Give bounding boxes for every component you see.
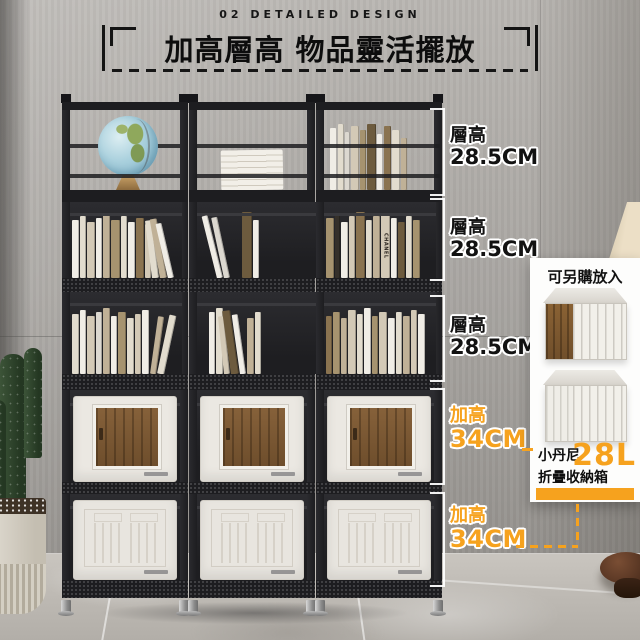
shelf-cell-r5c3	[324, 494, 434, 580]
annotation-layer-height-1: 層高 28.5CM	[450, 126, 538, 170]
folding-box-open-image	[543, 288, 627, 360]
shelf-cell-r3c1	[70, 292, 182, 374]
book-spine	[103, 308, 110, 374]
shelf-unit-1	[62, 92, 188, 614]
annotation-layer-height-3: 層高 28.5CM	[450, 316, 538, 360]
shelf-cell-r1c2	[197, 110, 307, 190]
shelf-cell-r3c3	[324, 292, 436, 374]
flat-book-stack	[221, 149, 284, 190]
connector-dash-vertical	[576, 504, 579, 546]
capacity-label: 28L	[572, 438, 636, 473]
storage-box-open	[327, 396, 431, 482]
shelf-board	[316, 278, 442, 292]
shelf: CHANEL	[62, 92, 442, 614]
book-spine: CHANEL	[381, 214, 390, 278]
globe-stand	[116, 175, 140, 190]
book-spine	[403, 316, 410, 374]
panel-title: 可另購放入	[530, 266, 640, 287]
storage-box-handle	[353, 428, 357, 440]
storage-box-closed	[327, 500, 431, 580]
book-spine	[103, 214, 110, 278]
shelf-board	[62, 482, 188, 494]
shelf-board	[316, 374, 442, 390]
book-spine	[326, 316, 332, 374]
storage-box-logo	[271, 472, 295, 476]
shelf-board	[62, 278, 188, 292]
book-spine	[341, 318, 347, 374]
book-spine	[127, 318, 134, 374]
book-spine	[388, 318, 395, 374]
annotation-layer-height-2: 層高 28.5CM	[450, 218, 538, 262]
book-spine	[366, 220, 372, 278]
product-detail-graphic: 02 DETAILED DESIGN 加高層高 物品靈活擺放 CHANEL 層高…	[0, 0, 640, 640]
shelf-board	[189, 374, 315, 390]
bracket-row5	[430, 492, 445, 587]
book-spine	[356, 212, 365, 278]
connector-dash-upper	[522, 448, 533, 451]
plant-pot	[0, 498, 46, 614]
book-spine	[392, 130, 400, 190]
shelf-bottom-rail	[62, 580, 188, 598]
wooden-stool-base	[614, 578, 640, 598]
shelf-cell-r2c1	[70, 202, 182, 278]
shelf-cell-r2c2	[197, 202, 327, 278]
book-spine	[349, 216, 355, 278]
shelf-cell-r4c2	[197, 390, 307, 482]
storage-box-open	[73, 396, 177, 482]
bracket-row4	[430, 388, 445, 485]
book-spine	[373, 216, 380, 278]
book-spine	[87, 316, 95, 374]
bracket-row3	[430, 295, 445, 382]
shelf-post	[189, 94, 197, 598]
book-spine	[348, 310, 356, 374]
book-spine	[333, 312, 340, 374]
book-spine	[379, 312, 387, 374]
shelf-post	[316, 94, 324, 598]
globe	[98, 116, 158, 176]
storage-box-opening	[347, 405, 415, 469]
storage-box-logo	[144, 570, 168, 574]
book-spine	[357, 314, 363, 374]
shelf-board	[189, 190, 315, 202]
shelf-board	[316, 190, 442, 202]
shelf-cell-r5c2	[197, 494, 307, 580]
storage-box-opening	[220, 405, 288, 469]
book-spine	[377, 134, 383, 190]
book-spine	[128, 222, 135, 278]
shelf-foot	[433, 600, 443, 614]
book-spine	[345, 132, 350, 190]
shelf-foot	[188, 600, 198, 614]
book-spine	[330, 128, 337, 190]
page-title: 加高層高 物品靈活擺放	[130, 27, 510, 69]
storage-box-logo	[398, 472, 422, 476]
shelf-bottom-rail	[316, 580, 442, 598]
book-spine	[398, 222, 405, 278]
book-spine	[111, 220, 120, 278]
panel-accent-bar	[536, 488, 634, 500]
book-spine	[111, 316, 117, 374]
book-spine	[118, 312, 126, 374]
book-spine	[384, 126, 391, 190]
book-spine	[72, 220, 79, 278]
storage-box-logo	[398, 570, 422, 574]
connector-dash-horizontal	[516, 545, 578, 548]
book-spine	[396, 312, 402, 374]
book-spine	[72, 314, 79, 374]
shelf-post	[62, 94, 70, 598]
shelf-board	[62, 374, 188, 390]
storage-box-logo	[271, 570, 295, 574]
bracket-row2	[430, 198, 445, 281]
book-spine	[413, 220, 420, 278]
book-spine	[136, 218, 144, 278]
book-spine	[418, 314, 425, 374]
shelf-cell-r3c2	[197, 292, 319, 374]
book-spine	[411, 310, 417, 374]
storage-box-closed	[73, 500, 177, 580]
book-spine	[96, 218, 102, 278]
book-spine	[360, 130, 366, 190]
storage-box-open	[200, 396, 304, 482]
shelf-unit-2	[189, 92, 315, 614]
shelf-board	[62, 102, 188, 110]
folding-box-closed-image	[543, 370, 627, 442]
shelf-board	[189, 102, 315, 110]
page-title-block: 加高層高 物品靈活擺放	[130, 25, 510, 71]
title-bracket-right	[504, 25, 538, 67]
book-spine	[80, 310, 86, 374]
shelf-foot	[315, 600, 325, 614]
book-spine	[335, 214, 340, 278]
shelf-cell-r4c3	[324, 390, 434, 482]
shelf-unit-3: CHANEL	[316, 92, 442, 614]
shelf-cell-r2c3: CHANEL	[324, 202, 436, 278]
shelf-board	[189, 482, 315, 494]
book-spine	[253, 220, 259, 278]
shelf-cell-r5c1	[70, 494, 180, 580]
book-spine	[121, 216, 127, 278]
book-spine	[351, 126, 359, 190]
book-spine	[255, 312, 261, 374]
book-spine	[209, 312, 215, 374]
title-dashed-underline	[112, 69, 528, 72]
wall-seam	[540, 0, 541, 258]
book-spine	[401, 138, 407, 190]
book-spine	[142, 310, 149, 374]
shelf-board	[189, 278, 315, 292]
book-spine	[338, 124, 344, 190]
book-spine	[341, 222, 348, 278]
book-spine	[372, 316, 378, 374]
cactus-plant	[0, 348, 52, 518]
book-spine	[80, 216, 86, 278]
book-spine	[135, 314, 141, 374]
book-spine	[367, 124, 376, 190]
section-label: 02 DETAILED DESIGN	[0, 8, 640, 21]
shelf-cell-r1c1	[70, 110, 180, 190]
book-spine	[96, 312, 102, 374]
shelf-cell-r4c1	[70, 390, 180, 482]
shelf-cell-r1c3	[324, 110, 440, 190]
book-spine	[87, 222, 95, 278]
book-spine	[247, 318, 254, 374]
storage-box-opening	[93, 405, 161, 469]
book-spine	[391, 218, 397, 278]
storage-box-handle	[99, 428, 103, 440]
shelf-bottom-rail	[189, 580, 315, 598]
book-spine	[242, 212, 252, 278]
annotation-raised-height-1: 加高 34CM	[450, 406, 527, 453]
storage-box-logo	[144, 472, 168, 476]
shelf-board	[316, 482, 442, 494]
bracket-row1	[430, 108, 445, 196]
storage-box-handle	[226, 428, 230, 440]
shelf-board	[62, 190, 188, 202]
shelf-foot	[61, 600, 71, 614]
book-spine	[406, 216, 412, 278]
book-spine	[326, 218, 334, 278]
optional-purchase-panel: 可另購放入 小丹尼 折疊收納箱 28L	[530, 258, 640, 502]
shelf-board	[316, 102, 442, 110]
storage-box-closed	[200, 500, 304, 580]
book-spine	[364, 308, 371, 374]
